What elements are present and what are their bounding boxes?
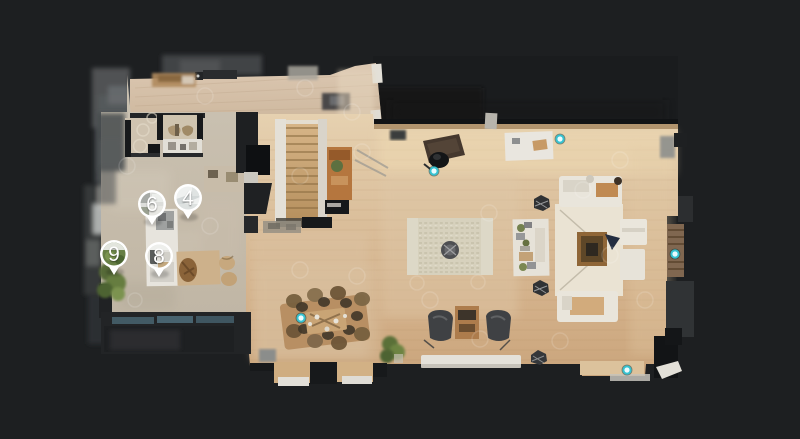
svg-text:4: 4	[182, 187, 194, 210]
svg-text:8: 8	[153, 245, 165, 268]
svg-text:6: 6	[146, 193, 158, 216]
svg-text:9: 9	[108, 243, 120, 266]
